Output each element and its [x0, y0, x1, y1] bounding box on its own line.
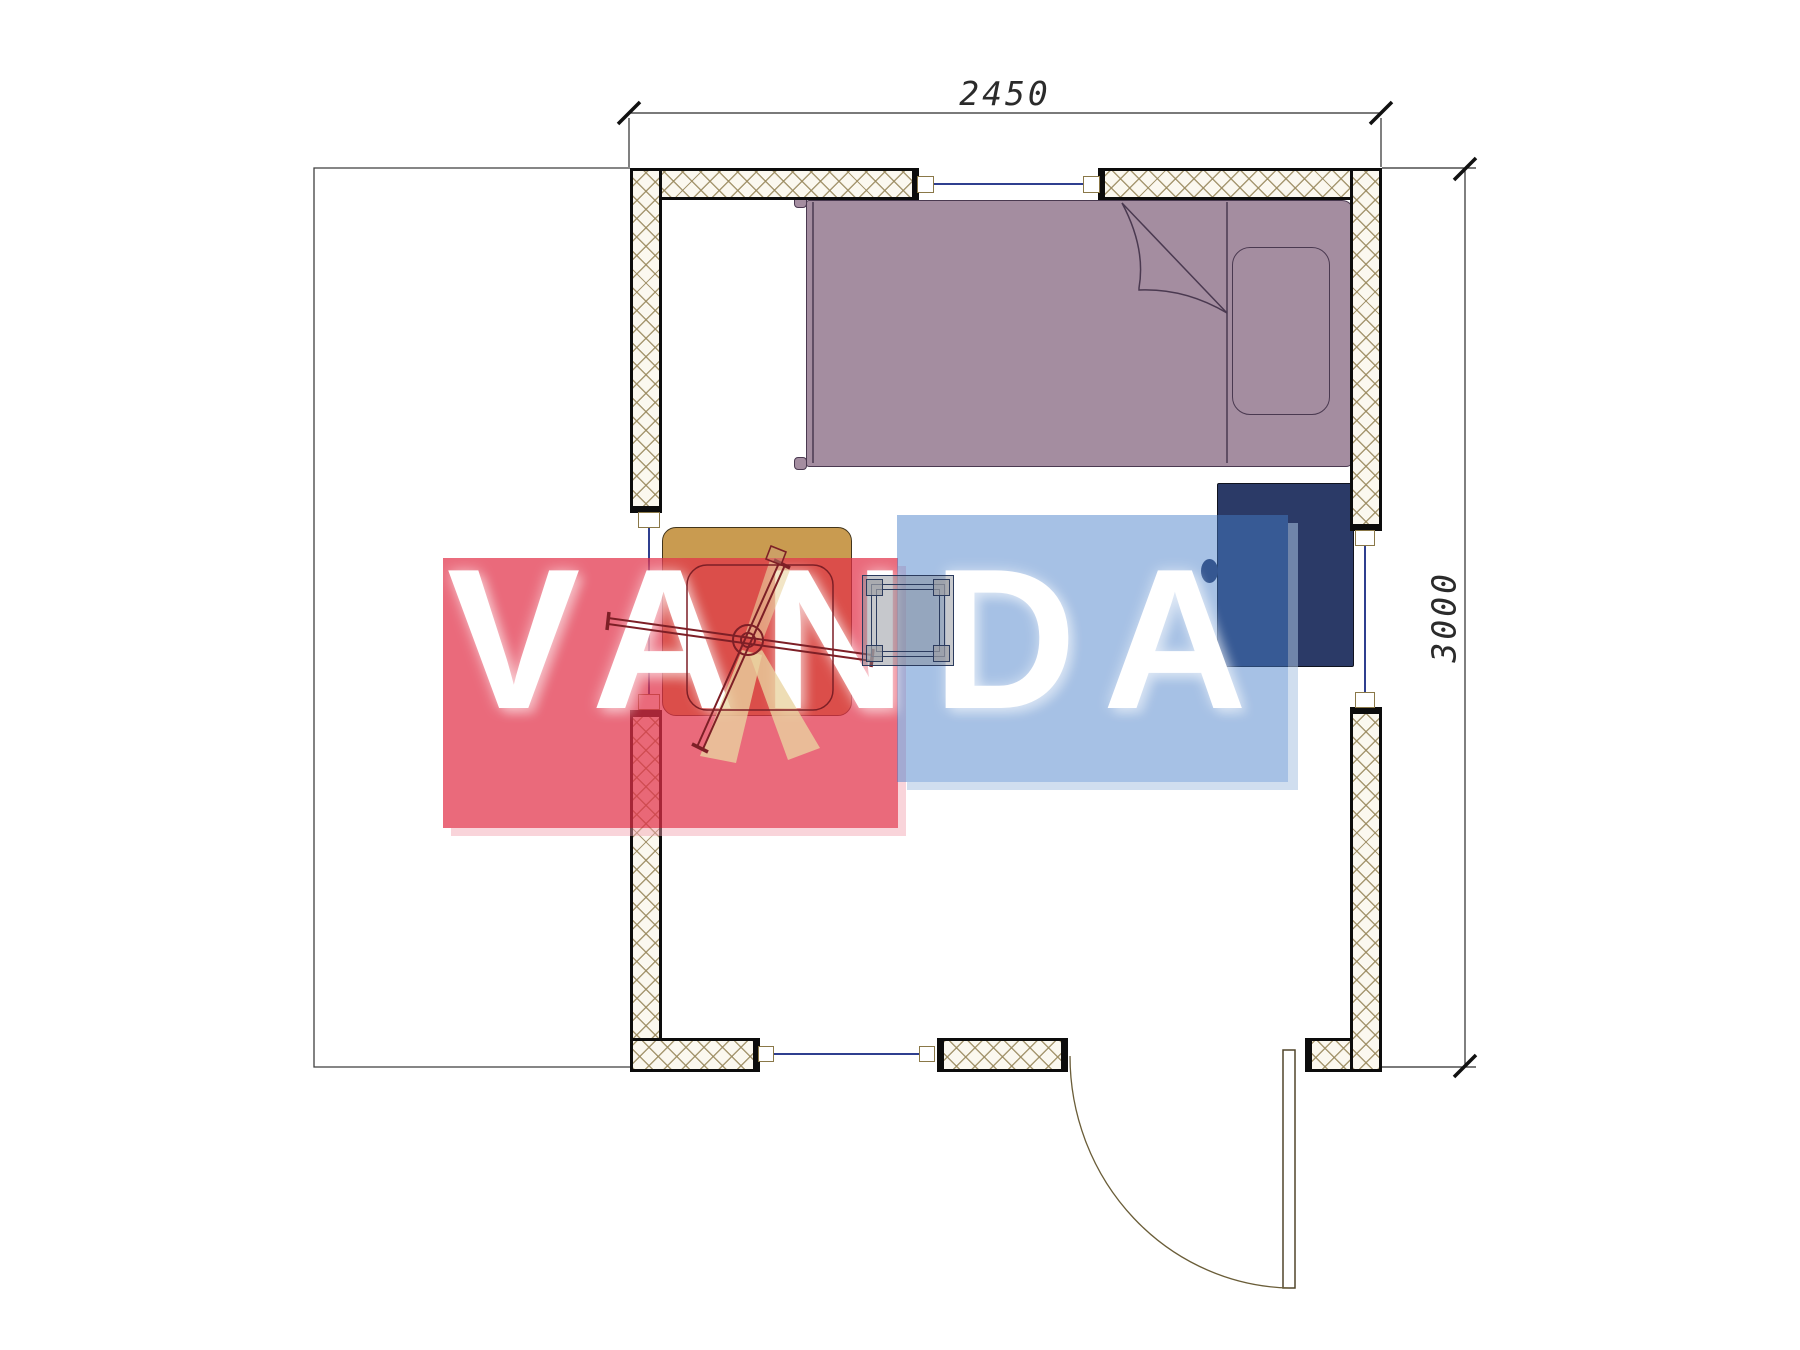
- wall-cap: [1350, 707, 1382, 714]
- window-box: [1083, 176, 1100, 193]
- window-box: [1355, 530, 1375, 546]
- pillow: [1232, 247, 1330, 415]
- wall-cap: [1305, 1038, 1312, 1072]
- wall-cap: [1061, 1038, 1068, 1072]
- watermark-text: VANDA: [430, 540, 1290, 740]
- stool-leg: [866, 645, 883, 662]
- stool-leg: [866, 579, 883, 596]
- window-box: [1355, 692, 1375, 708]
- wall-cap: [937, 1038, 944, 1072]
- window-box: [758, 1046, 774, 1062]
- stool-inner-frame-2: [876, 589, 940, 652]
- wall-right-lower: [1350, 707, 1382, 1072]
- wall-left-upper: [630, 168, 662, 513]
- bed-foot-bottom: [794, 457, 807, 470]
- wall-right-upper: [1350, 168, 1382, 531]
- door: [1070, 1050, 1295, 1288]
- window-box: [917, 176, 934, 193]
- dimension-height-label: 3000: [1425, 573, 1464, 663]
- stool-leg: [933, 645, 950, 662]
- stool: [862, 575, 954, 666]
- wall-top-left: [630, 168, 919, 200]
- stool-leg: [933, 579, 950, 596]
- wall-bottom-middle: [937, 1038, 1068, 1072]
- window-box: [919, 1046, 935, 1062]
- door-swing-arc: [1070, 1056, 1289, 1288]
- door-leaf: [1283, 1050, 1295, 1288]
- wall-bottom-left: [630, 1038, 760, 1072]
- window-box: [638, 512, 660, 528]
- floor-plan-page: VANDA: [0, 0, 1800, 1350]
- dimension-width-label: 2450: [925, 74, 1085, 113]
- wall-top-right: [1098, 168, 1382, 200]
